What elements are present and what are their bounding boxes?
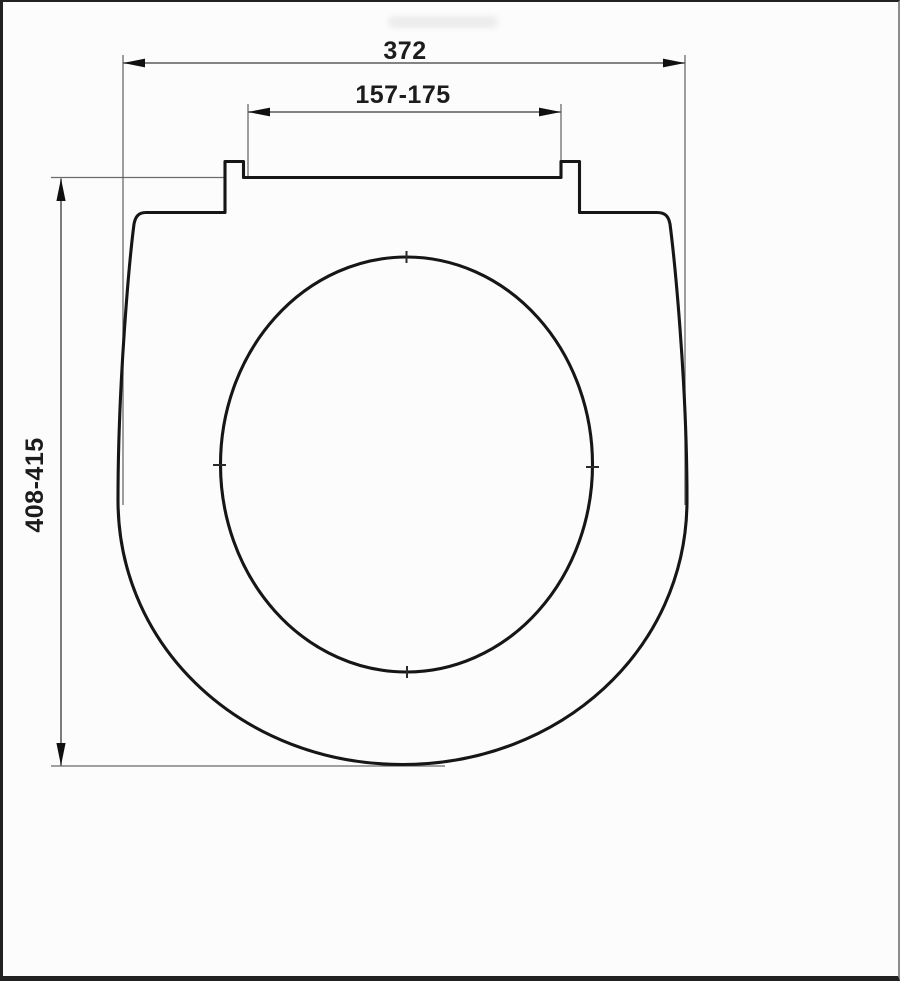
arrow-right-icon xyxy=(539,108,561,117)
seat-inner-opening xyxy=(221,257,593,672)
dimension-label-overall-length: 408-415 xyxy=(23,425,49,545)
extension-lines xyxy=(51,55,685,766)
arrow-right-icon xyxy=(663,59,685,68)
arrow-down-icon xyxy=(56,743,65,766)
arrow-left-icon xyxy=(248,108,270,117)
seat-outer-contour xyxy=(118,162,687,765)
arrow-up-icon xyxy=(56,179,65,202)
dimension-overall-length xyxy=(56,179,65,766)
toilet-seat-dimension-drawing xyxy=(0,0,900,981)
center-tick-marks xyxy=(213,251,599,678)
drawing-canvas: 372 157-175 408-415 xyxy=(0,0,900,981)
arrow-left-icon xyxy=(123,59,145,68)
dimension-label-overall-width: 372 xyxy=(305,39,505,64)
dimension-label-hinge-spacing: 157-175 xyxy=(303,83,503,108)
